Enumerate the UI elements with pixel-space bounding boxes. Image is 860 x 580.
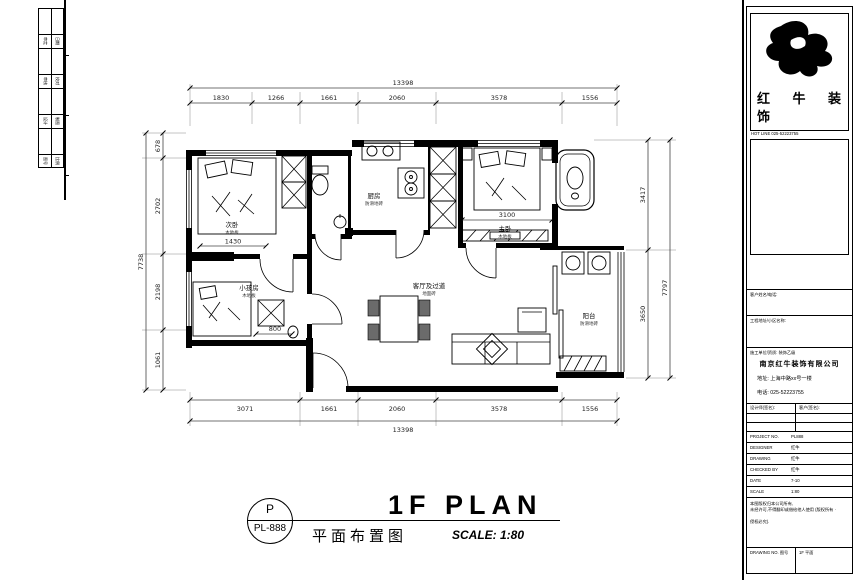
dim-left-total: 7738: [137, 254, 145, 271]
sheet-title-cn: 平面布置图: [312, 525, 407, 546]
bubble-number: PL-888: [248, 520, 292, 538]
field-value: 红牛: [791, 467, 800, 473]
field-value: PL888: [791, 434, 803, 439]
dim-bottom-4: 3578: [491, 405, 508, 413]
dim-top-2: 1266: [268, 94, 285, 102]
bay-window: [556, 150, 594, 210]
dim-kids: 800: [269, 325, 281, 333]
bull-logo-icon: [751, 14, 846, 84]
dim-right-2: 3650: [639, 306, 647, 323]
dim-bottom-5: 1556: [582, 405, 599, 413]
company-phone: 电话: 025-52223755: [757, 389, 804, 396]
dim-left-3: 2198: [154, 284, 162, 301]
dim-right-1: 3417: [639, 187, 647, 204]
dim-left-2: 2702: [154, 198, 162, 215]
drawing-no-value: 1F 平面: [799, 550, 813, 556]
field-label: SCALE: [750, 489, 764, 494]
dim-bottom-total: 13398: [393, 426, 414, 434]
copyright-note-3: 侵权必究).: [750, 519, 769, 525]
room-sub-balcony: 防滑地砖: [580, 320, 598, 327]
dim-left-1: 678: [154, 140, 162, 152]
field-value: 红牛: [791, 445, 800, 451]
dim-right-total: 7797: [661, 280, 669, 297]
copyright-note-2: 未经许可,不得翻印或借给他人使用 (版权所有 ·: [750, 507, 850, 513]
dim-top-4: 2060: [389, 94, 406, 102]
client-row-label: 客户姓名/电话:: [750, 292, 777, 298]
field-label: DRAWING: [750, 456, 771, 461]
kitchen-fixtures: [362, 142, 456, 228]
sheet-scale: SCALE: 1:80: [452, 528, 524, 542]
dim-left-4: 1061: [154, 352, 162, 369]
dim-top-5: 3578: [491, 94, 508, 102]
bedroom2-furniture: [198, 156, 307, 249]
living-room-furniture: [368, 296, 606, 371]
drawing-number-bubble: P PL-888: [247, 498, 293, 544]
field-label: PROJECT NO.: [750, 434, 779, 439]
empty-panel: [750, 139, 849, 255]
drawing-sheet: { "strip": { "rows": [ ["审定","日期"], ["审核…: [0, 0, 860, 580]
floor-plan-drawing: 13398 1830 1266 1661 2060 3578 1556 3071…: [0, 0, 740, 470]
field-label: CHECKED BY: [750, 467, 778, 472]
dim-bottom-3: 2060: [389, 405, 406, 413]
sheet-title: 1F PLAN: [388, 490, 543, 521]
brand-name-line1: 红 牛 装: [757, 88, 843, 107]
titleblock: 红 牛 装 饰 HOT LINE 025-52223755 客户姓名/电话: 工…: [746, 6, 853, 574]
room-sub-bedroom2: 木地板: [225, 229, 239, 236]
dim-bottom-1: 3071: [237, 405, 254, 413]
field-value: 7-10: [791, 478, 800, 483]
room-sub-kitchen: 防滑地砖: [365, 200, 383, 207]
titleblock-border-line: [742, 0, 744, 580]
brand-name-line2: 饰: [757, 106, 770, 125]
company-address: 地址: 上海中路xx号一楼: [757, 375, 812, 382]
bathroom-fixtures: [312, 166, 346, 228]
room-labels: 次卧 木地板 1430 小孩房 木地板 800 厨房 防滑地砖 3100 主卧 …: [225, 191, 599, 333]
room-label-living: 客厅及过道: [413, 281, 446, 290]
field-label: DATE: [750, 478, 761, 483]
sign-left-label: 设计师(签名):: [750, 405, 775, 411]
drawing-no-label: DRAWING NO. 图号: [750, 550, 788, 556]
dim-top-1: 1830: [213, 94, 230, 102]
site-row-label: 工程地址/小区名称:: [750, 318, 786, 324]
dim-bed2: 1430: [225, 238, 242, 246]
company-header: 施工单位/资质: 装饰乙级: [750, 350, 795, 356]
room-label-bedroom2: 次卧: [226, 220, 240, 229]
room-label-master: 主卧: [499, 224, 513, 233]
company-name: 南京红牛装饰有限公司: [747, 359, 852, 369]
balcony-fixtures: [562, 252, 610, 274]
room-sub-living: 地面砖: [422, 290, 436, 297]
room-sub-kids: 木地板: [242, 292, 256, 299]
dim-bottom-2: 1661: [321, 405, 338, 413]
room-label-kitchen: 厨房: [368, 191, 381, 200]
field-value: 1:80: [791, 489, 799, 494]
logo-box: 红 牛 装 饰: [750, 13, 849, 131]
room-label-kids: 小孩房: [239, 283, 259, 292]
sign-right-label: 客户(签名):: [799, 405, 820, 411]
dim-master: 3100: [499, 211, 516, 219]
dim-top-3: 1661: [321, 94, 338, 102]
field-label: DESIGNER: [750, 445, 772, 450]
bubble-letter: P: [248, 499, 292, 520]
room-sub-master: 木地板: [498, 233, 512, 240]
hotline-text: HOT LINE 025-52223755: [751, 131, 798, 136]
room-label-balcony: 阳台: [583, 311, 596, 320]
dim-top-6: 1556: [582, 94, 599, 102]
dim-top-total: 13398: [393, 79, 414, 87]
field-value: 红牛: [791, 456, 800, 462]
